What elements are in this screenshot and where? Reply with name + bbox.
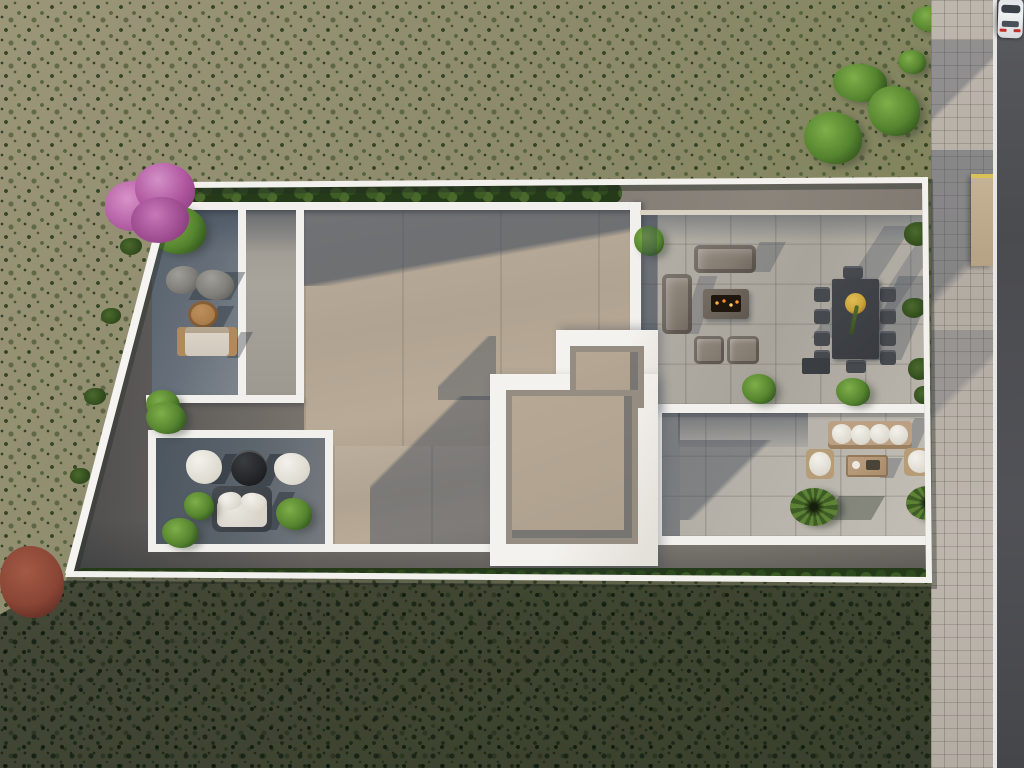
boundary-wall-svg: [0, 0, 1024, 768]
pink-flowering-tree: [105, 163, 197, 247]
pink-tree-blob: [131, 197, 189, 243]
wall-shadow: [72, 184, 932, 584]
red-shrub: [0, 546, 64, 618]
wall-white: [69, 180, 929, 580]
aerial-villa-scene: [0, 0, 1024, 768]
